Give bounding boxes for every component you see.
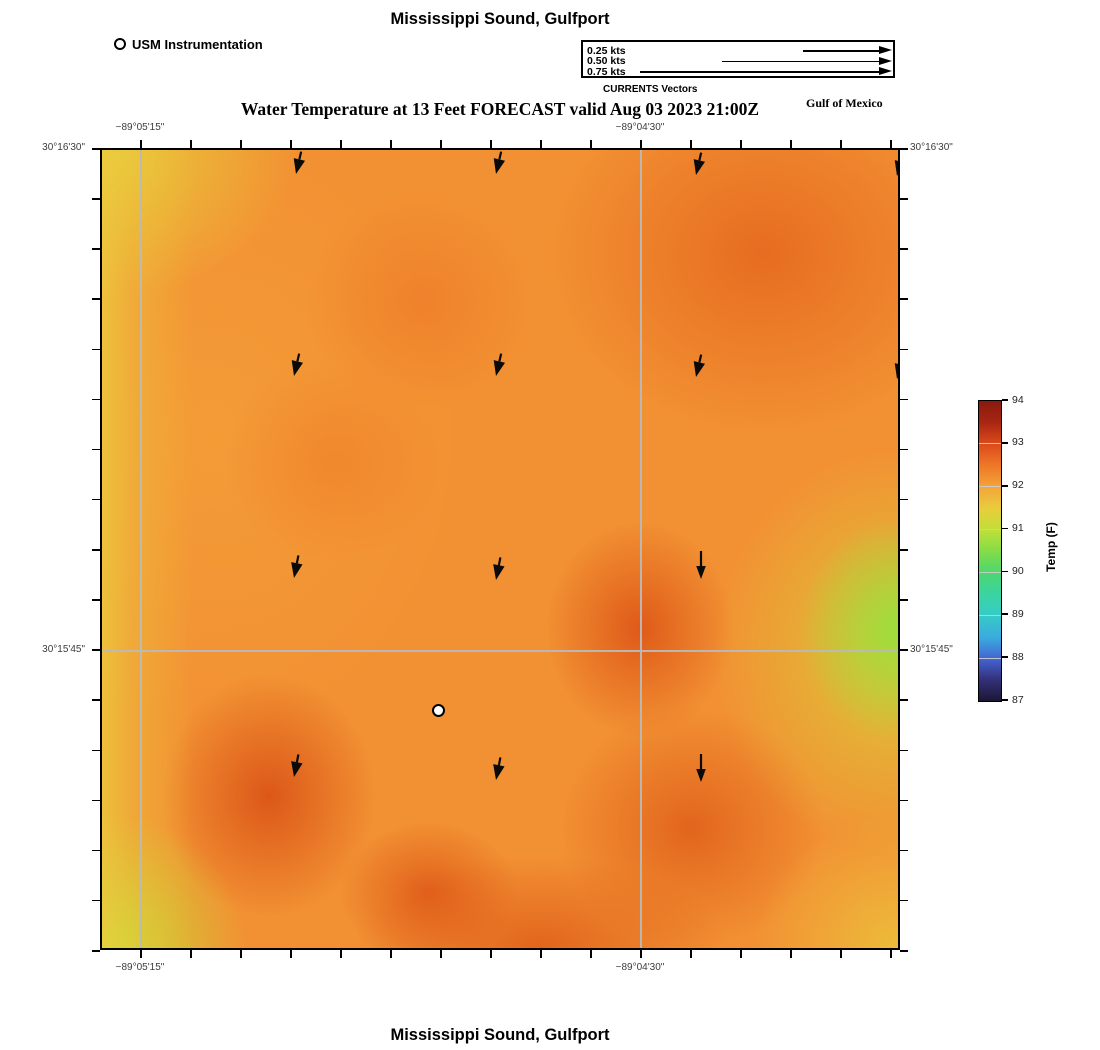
tick-top: [640, 140, 642, 148]
colorbar-tick-label: 91: [1012, 522, 1038, 534]
current-vector-arrow-icon: [476, 336, 516, 392]
tick-bottom: [640, 950, 642, 958]
current-vector-arrow-icon: [877, 148, 900, 192]
colorbar-gridline: [979, 486, 1001, 487]
tick-left: [92, 699, 100, 701]
current-vector-arrow-icon: [681, 742, 721, 798]
colorbar-tick-label: 88: [1012, 651, 1038, 663]
tick-bottom: [340, 950, 342, 958]
axis-label-bottom-right: −89°04'30": [570, 962, 710, 973]
colorbar-gridline: [979, 658, 1001, 659]
axis-label-top-left: −89°05'15": [70, 122, 210, 133]
tick-right: [900, 599, 908, 601]
tick-top: [340, 140, 342, 148]
tick-right: [900, 449, 908, 451]
legend-arrow-head-icon: [879, 46, 892, 54]
tick-top: [190, 140, 192, 148]
tick-top: [790, 140, 792, 148]
colorbar-gridline: [979, 615, 1001, 616]
colorbar-tick: [1002, 699, 1008, 701]
colorbar-tick-label: 90: [1012, 565, 1038, 577]
axis-label-bottom-left: −89°05'15": [70, 962, 210, 973]
tick-bottom: [390, 950, 392, 958]
gridline-horizontal: [102, 650, 898, 652]
current-vector-arrow-icon: [274, 737, 314, 793]
colorbar-tick-label: 94: [1012, 394, 1038, 406]
usm-station-legend-icon: [114, 38, 126, 50]
current-vector-arrow-icon: [476, 540, 516, 596]
legend-arrow-line: [803, 50, 879, 52]
tick-left: [92, 950, 100, 952]
tick-top: [240, 140, 242, 148]
legend-speed-label: 0.75 kts: [587, 67, 626, 77]
tick-left: [92, 800, 100, 802]
colorbar-tick-label: 87: [1012, 694, 1038, 706]
tick-left: [92, 248, 100, 250]
colorbar-tick: [1002, 442, 1008, 444]
colorbar-gridline: [979, 529, 1001, 530]
colorbar-tick: [1002, 528, 1008, 530]
tick-right: [900, 699, 908, 701]
forecast-title: Water Temperature at 13 Feet FORECAST va…: [50, 99, 950, 120]
tick-bottom: [690, 950, 692, 958]
tick-top: [440, 140, 442, 148]
current-vector-arrow-icon: [877, 339, 900, 395]
colorbar-tick: [1002, 656, 1008, 658]
colorbar-tick: [1002, 485, 1008, 487]
tick-top: [290, 140, 292, 148]
tick-right: [900, 499, 908, 501]
tick-right: [900, 549, 908, 551]
tick-bottom: [890, 950, 892, 958]
colorbar-tick: [1002, 399, 1008, 401]
colorbar-tick: [1002, 571, 1008, 573]
current-vector-arrow-icon: [676, 148, 716, 191]
tick-bottom: [440, 950, 442, 958]
tick-top: [890, 140, 892, 148]
colorbar-tick-label: 89: [1012, 608, 1038, 620]
tick-bottom: [840, 950, 842, 958]
axis-label-left-lower: 30°15'45": [13, 644, 85, 655]
tick-bottom: [790, 950, 792, 958]
tick-right: [900, 198, 908, 200]
tick-left: [92, 599, 100, 601]
tick-bottom: [540, 950, 542, 958]
tick-top: [840, 140, 842, 148]
tick-top: [140, 140, 142, 148]
current-vector-arrow-icon: [276, 148, 316, 190]
tick-bottom: [740, 950, 742, 958]
colorbar-gridline: [979, 572, 1001, 573]
tick-left: [92, 549, 100, 551]
legend-arrow-head-icon: [879, 57, 892, 65]
footer-title: Mississippi Sound, Gulfport: [100, 1026, 900, 1045]
tick-top: [390, 140, 392, 148]
tick-top: [540, 140, 542, 148]
tick-top: [690, 140, 692, 148]
current-vector-arrow-icon: [274, 336, 314, 392]
gridline-vertical-2: [640, 150, 642, 948]
tick-left: [92, 900, 100, 902]
tick-right: [900, 298, 908, 300]
colorbar: [978, 400, 1002, 702]
colorbar-tick: [1002, 613, 1008, 615]
axis-label-right-upper: 30°16'30": [910, 142, 1000, 153]
current-vector-arrow-icon: [676, 337, 716, 393]
tick-left: [92, 449, 100, 451]
tick-bottom: [190, 950, 192, 958]
colorbar-axis-label: Temp (F): [1044, 497, 1060, 597]
tick-bottom: [490, 950, 492, 958]
page-title: Mississippi Sound, Gulfport: [100, 10, 900, 29]
tick-right: [900, 850, 908, 852]
legend-arrow-line: [640, 71, 879, 73]
current-vector-arrow-icon: [476, 148, 516, 190]
tick-top: [490, 140, 492, 148]
current-vector-arrow-icon: [681, 539, 721, 595]
axis-label-top-right: −89°04'30": [570, 122, 710, 133]
tick-right: [900, 148, 908, 150]
tick-bottom: [240, 950, 242, 958]
tick-left: [92, 649, 100, 651]
legend-arrow-line: [722, 61, 879, 63]
tick-bottom: [590, 950, 592, 958]
tick-left: [92, 399, 100, 401]
axis-label-left-upper: 30°16'30": [13, 142, 85, 153]
tick-top: [590, 140, 592, 148]
tick-left: [92, 198, 100, 200]
tick-right: [900, 349, 908, 351]
tick-left: [92, 148, 100, 150]
currents-vector-caption: CURRENTS Vectors: [603, 84, 697, 95]
legend-speed-label: 0.50 kts: [587, 56, 626, 66]
tick-left: [92, 349, 100, 351]
tick-right: [900, 248, 908, 250]
usm-legend-label: USM Instrumentation: [132, 37, 263, 52]
legend-speed-label: 0.25 kts: [587, 46, 626, 56]
tick-right: [900, 900, 908, 902]
tick-right: [900, 950, 908, 952]
current-vector-arrow-icon: [476, 740, 516, 796]
usm-station-marker: [432, 704, 445, 717]
tick-left: [92, 298, 100, 300]
currents-vector-legend: 0.25 kts0.50 kts0.75 kts: [581, 40, 895, 78]
colorbar-tick-label: 93: [1012, 436, 1038, 448]
tick-left: [92, 499, 100, 501]
tick-bottom: [140, 950, 142, 958]
tick-right: [900, 750, 908, 752]
tick-right: [900, 399, 908, 401]
tick-bottom: [290, 950, 292, 958]
gridline-vertical-1: [140, 150, 142, 948]
tick-top: [740, 140, 742, 148]
tick-left: [92, 850, 100, 852]
colorbar-tick-label: 92: [1012, 479, 1038, 491]
tick-right: [900, 649, 908, 651]
tick-right: [900, 800, 908, 802]
legend-arrow-head-icon: [879, 67, 892, 75]
tick-left: [92, 750, 100, 752]
figure-canvas: Mississippi Sound, Gulfport USM Instrume…: [0, 0, 1100, 1050]
temperature-heatmap: [100, 148, 900, 950]
current-vector-arrow-icon: [274, 538, 314, 594]
colorbar-gridline: [979, 443, 1001, 444]
